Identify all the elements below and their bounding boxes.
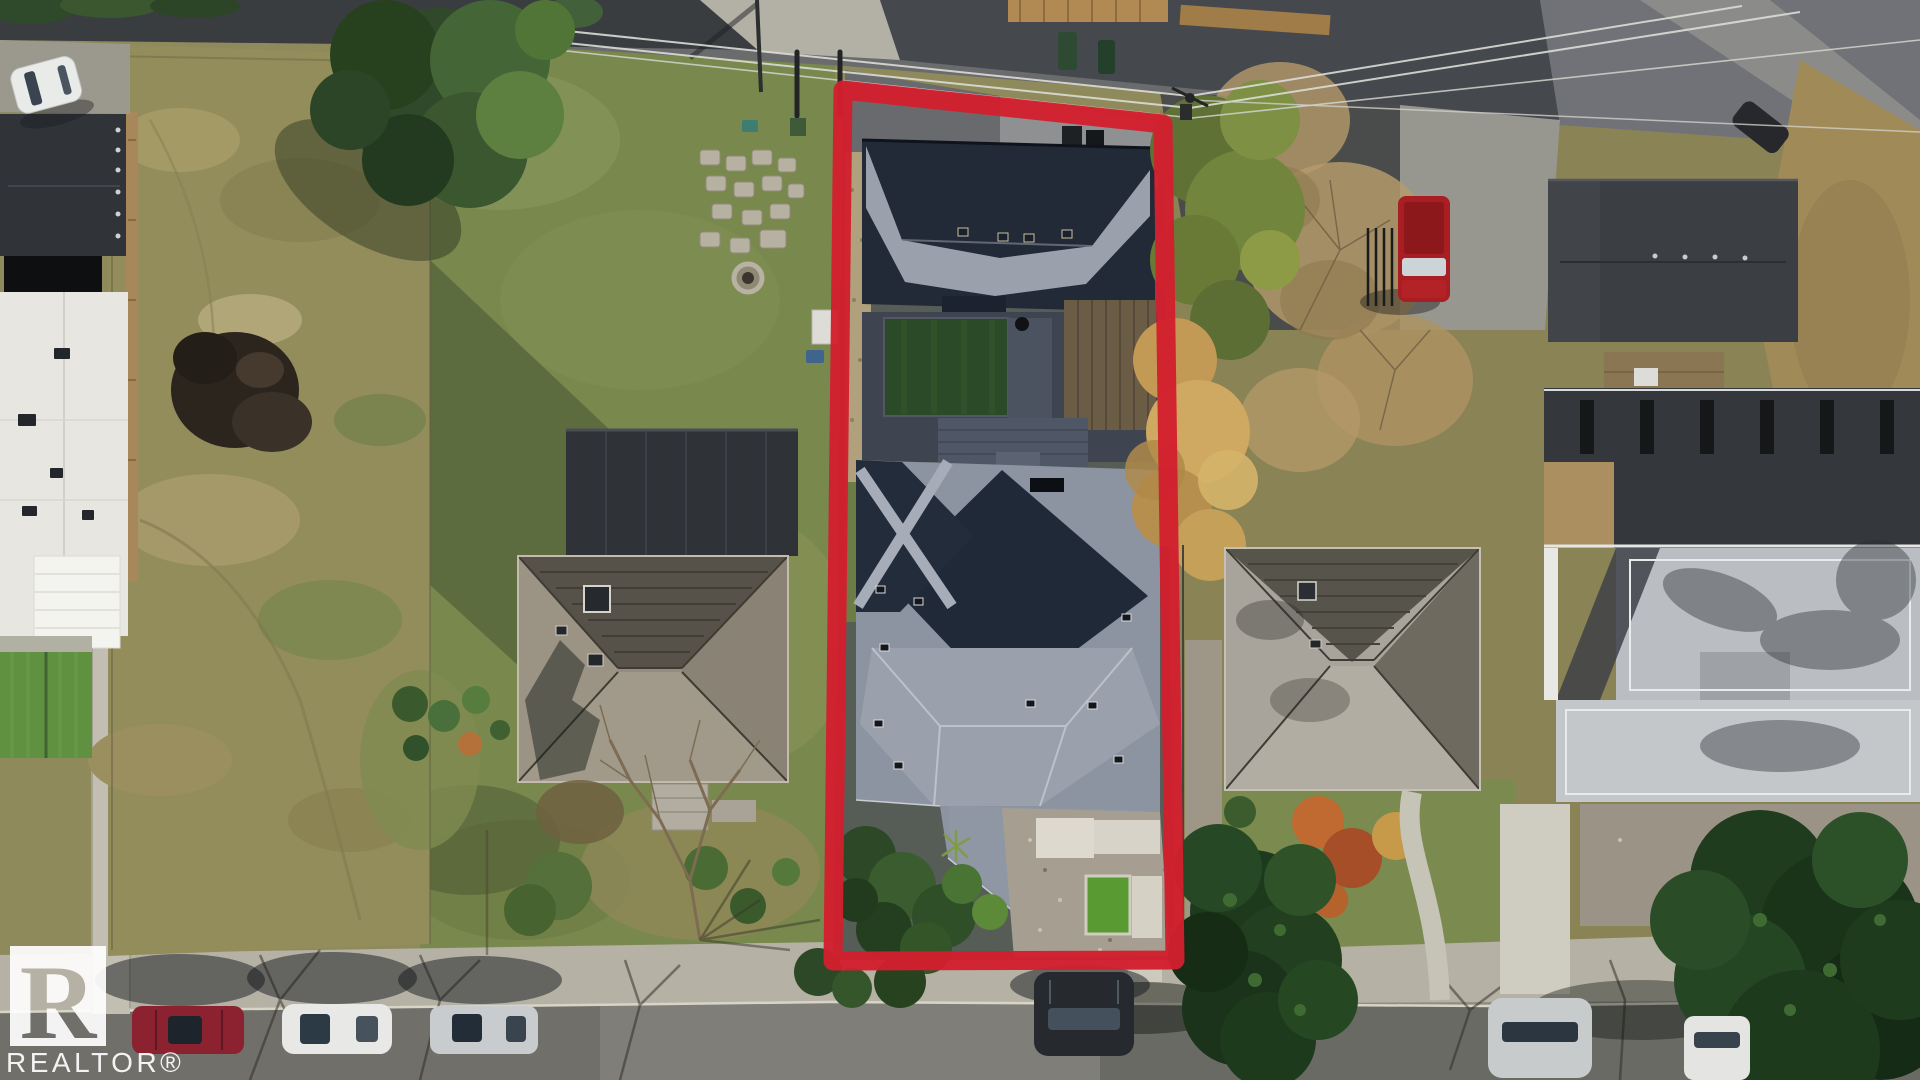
neighbor-house-right-roof (1225, 548, 1480, 790)
parked-car-white (282, 1004, 392, 1054)
aerial-photo: R REALTOR® (0, 0, 1920, 1080)
patio-table (1634, 368, 1658, 386)
walkway-pad (1036, 818, 1094, 858)
blue-tarp (806, 350, 824, 363)
garbage-bin (1098, 40, 1115, 74)
wood-fence (1008, 0, 1168, 22)
garage-roof (862, 140, 1155, 312)
realtor-logo-icon (10, 946, 106, 1046)
front-turf (1086, 876, 1130, 934)
watermark-label: REALTOR® (6, 1047, 184, 1078)
front-walk (1500, 804, 1570, 994)
garbage-bin (1058, 32, 1077, 70)
right-garage-roof (1548, 180, 1798, 342)
parked-car-silver (430, 1006, 538, 1054)
utility-box (790, 118, 806, 136)
neighbor-house-left-roof (518, 556, 788, 782)
chimney (584, 586, 610, 612)
walkway-strip (1132, 876, 1162, 938)
neighbor-shed-roof (566, 430, 798, 556)
pergola-roof (34, 556, 120, 648)
parked-car-white-right (1684, 1016, 1750, 1080)
subject-lot (794, 70, 1175, 1008)
parked-suv-gray (1488, 998, 1592, 1078)
backyard (862, 300, 1158, 470)
walkway-pad (1094, 820, 1160, 854)
chimney (1298, 582, 1316, 600)
aerial-photo-stage: R REALTOR® (0, 0, 1920, 1080)
